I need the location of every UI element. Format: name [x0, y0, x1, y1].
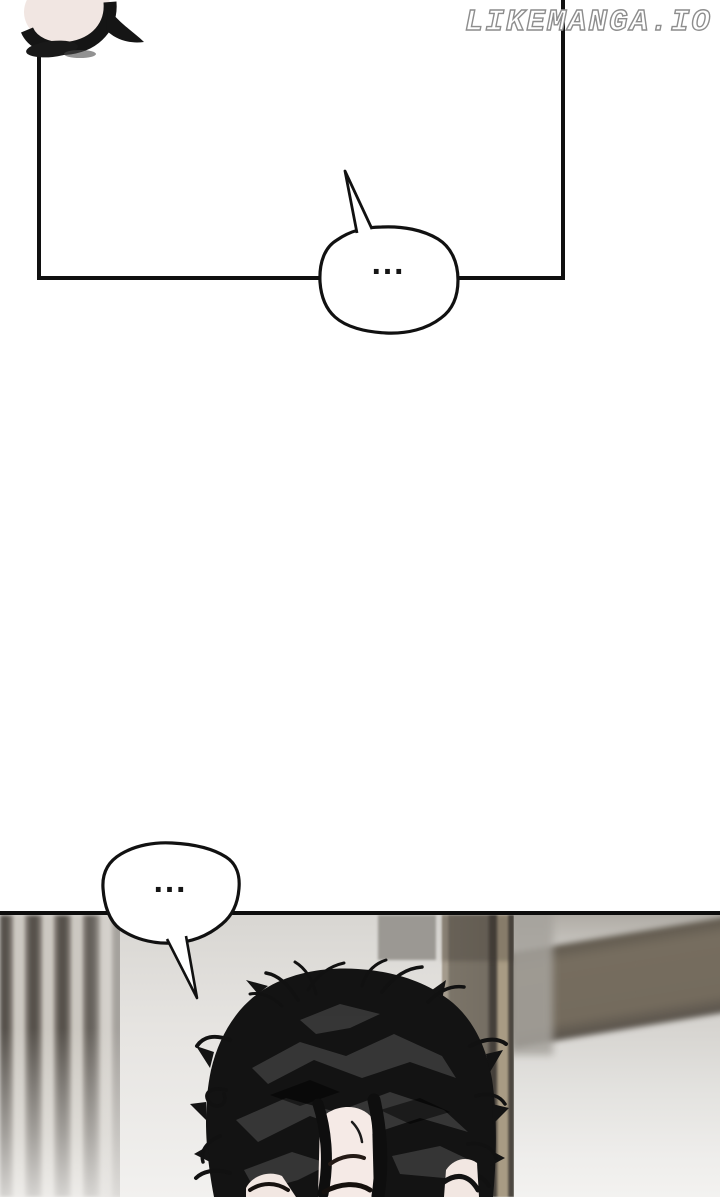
site-watermark: LIKEMANGA.IO [465, 5, 712, 40]
dark-sweep-tip [106, 8, 144, 43]
speech-bubble-2 [96, 836, 246, 1004]
speech-bubble-1-text: ... [352, 253, 424, 279]
panel-top-corner-figure [18, 0, 158, 72]
shadow [64, 50, 96, 58]
speech-bubble-2-text: ... [134, 871, 206, 897]
bubble-tail [345, 171, 372, 233]
bang-right [374, 1100, 381, 1196]
page-canvas: LIKEMANGA.IO [0, 0, 720, 1197]
manga-page: { "page": { "width_px": 720, "height_px"… [0, 0, 720, 1197]
bubble-tail [167, 936, 197, 998]
